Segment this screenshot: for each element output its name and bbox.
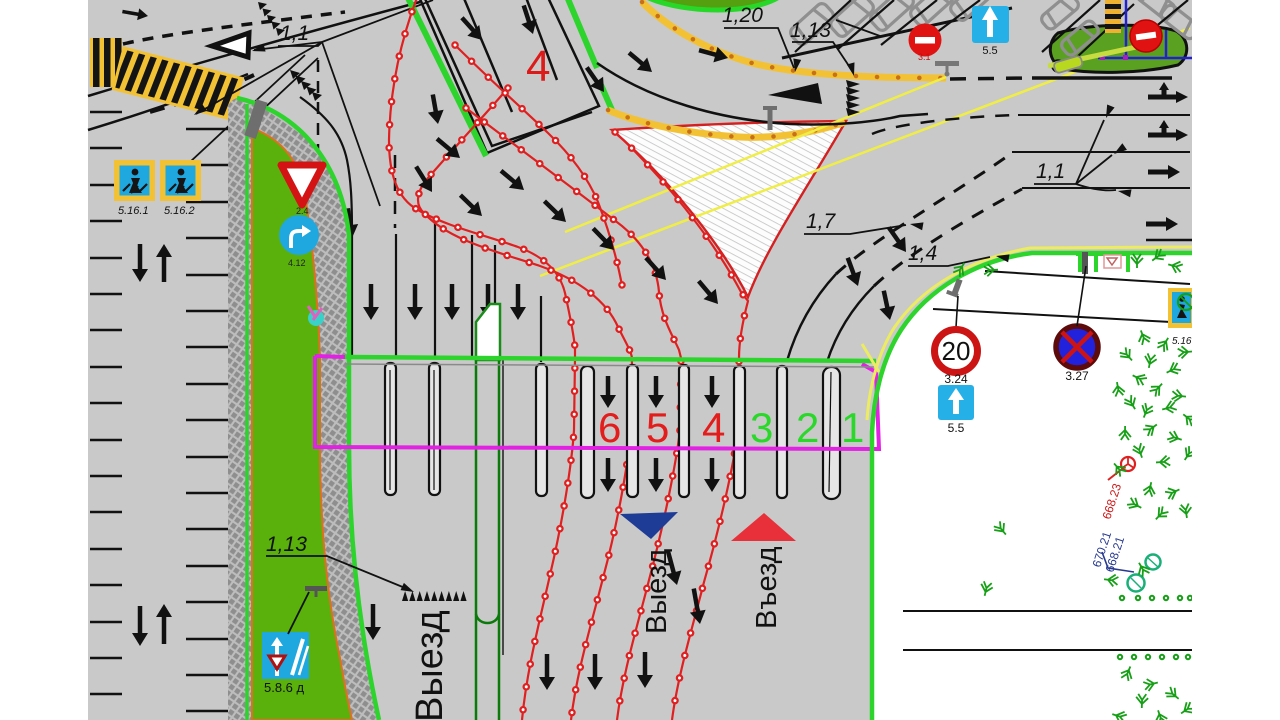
svg-text:5.16.2: 5.16.2 (164, 205, 195, 217)
svg-text:Выезд: Выезд (641, 549, 673, 634)
svg-text:4: 4 (526, 42, 550, 91)
svg-text:668.23: 668.23 (1100, 481, 1125, 521)
svg-text:1,4: 1,4 (908, 242, 937, 265)
svg-text:5.5: 5.5 (948, 421, 965, 435)
svg-text:6: 6 (598, 404, 621, 451)
svg-text:1,1: 1,1 (280, 22, 309, 45)
svg-text:4.12: 4.12 (288, 258, 306, 268)
svg-text:3: 3 (750, 404, 773, 451)
svg-text:1,7: 1,7 (806, 210, 837, 233)
svg-text:2.4: 2.4 (296, 206, 309, 216)
svg-text:1,13: 1,13 (790, 19, 831, 42)
svg-text:5.16: 5.16 (1172, 336, 1192, 347)
svg-text:3.27: 3.27 (1065, 369, 1089, 383)
svg-text:2: 2 (796, 404, 819, 451)
svg-text:1,1: 1,1 (1036, 160, 1065, 183)
svg-text:5.8.6 д: 5.8.6 д (264, 680, 305, 695)
svg-text:5.16.1: 5.16.1 (118, 205, 149, 217)
svg-text:20: 20 (942, 336, 971, 366)
svg-text:5: 5 (646, 404, 669, 451)
svg-text:3.1: 3.1 (918, 52, 931, 62)
svg-text:1: 1 (841, 404, 864, 451)
svg-text:4: 4 (702, 404, 725, 451)
svg-text:Выезд: Выезд (409, 610, 451, 720)
svg-text:5.5: 5.5 (982, 45, 997, 57)
svg-text:3.24: 3.24 (944, 372, 968, 386)
svg-text:1,13: 1,13 (266, 533, 307, 556)
svg-text:Въезд: Въезд (751, 546, 783, 629)
svg-text:1,20: 1,20 (722, 4, 763, 27)
